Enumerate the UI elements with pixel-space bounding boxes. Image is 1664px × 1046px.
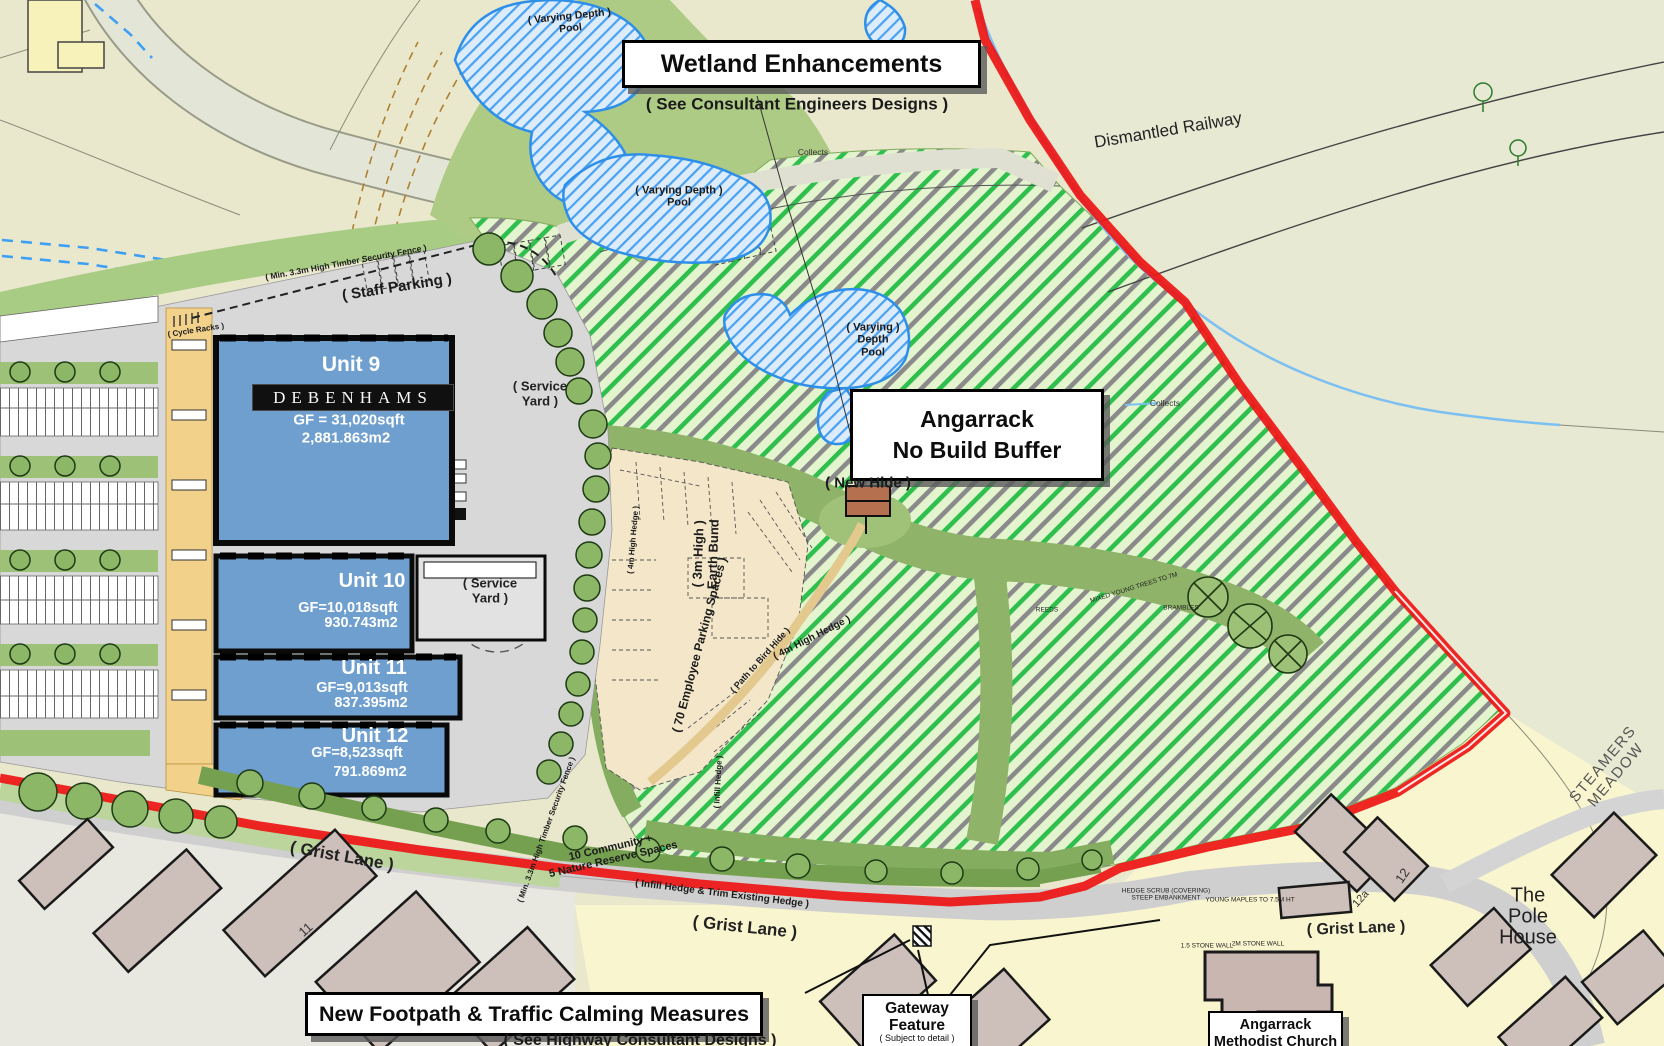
gateway-feature-marker bbox=[913, 926, 931, 946]
map-graphics bbox=[0, 0, 1664, 1046]
site-plan-map: Wetland Enhancements ( See Consultant En… bbox=[0, 0, 1664, 1046]
